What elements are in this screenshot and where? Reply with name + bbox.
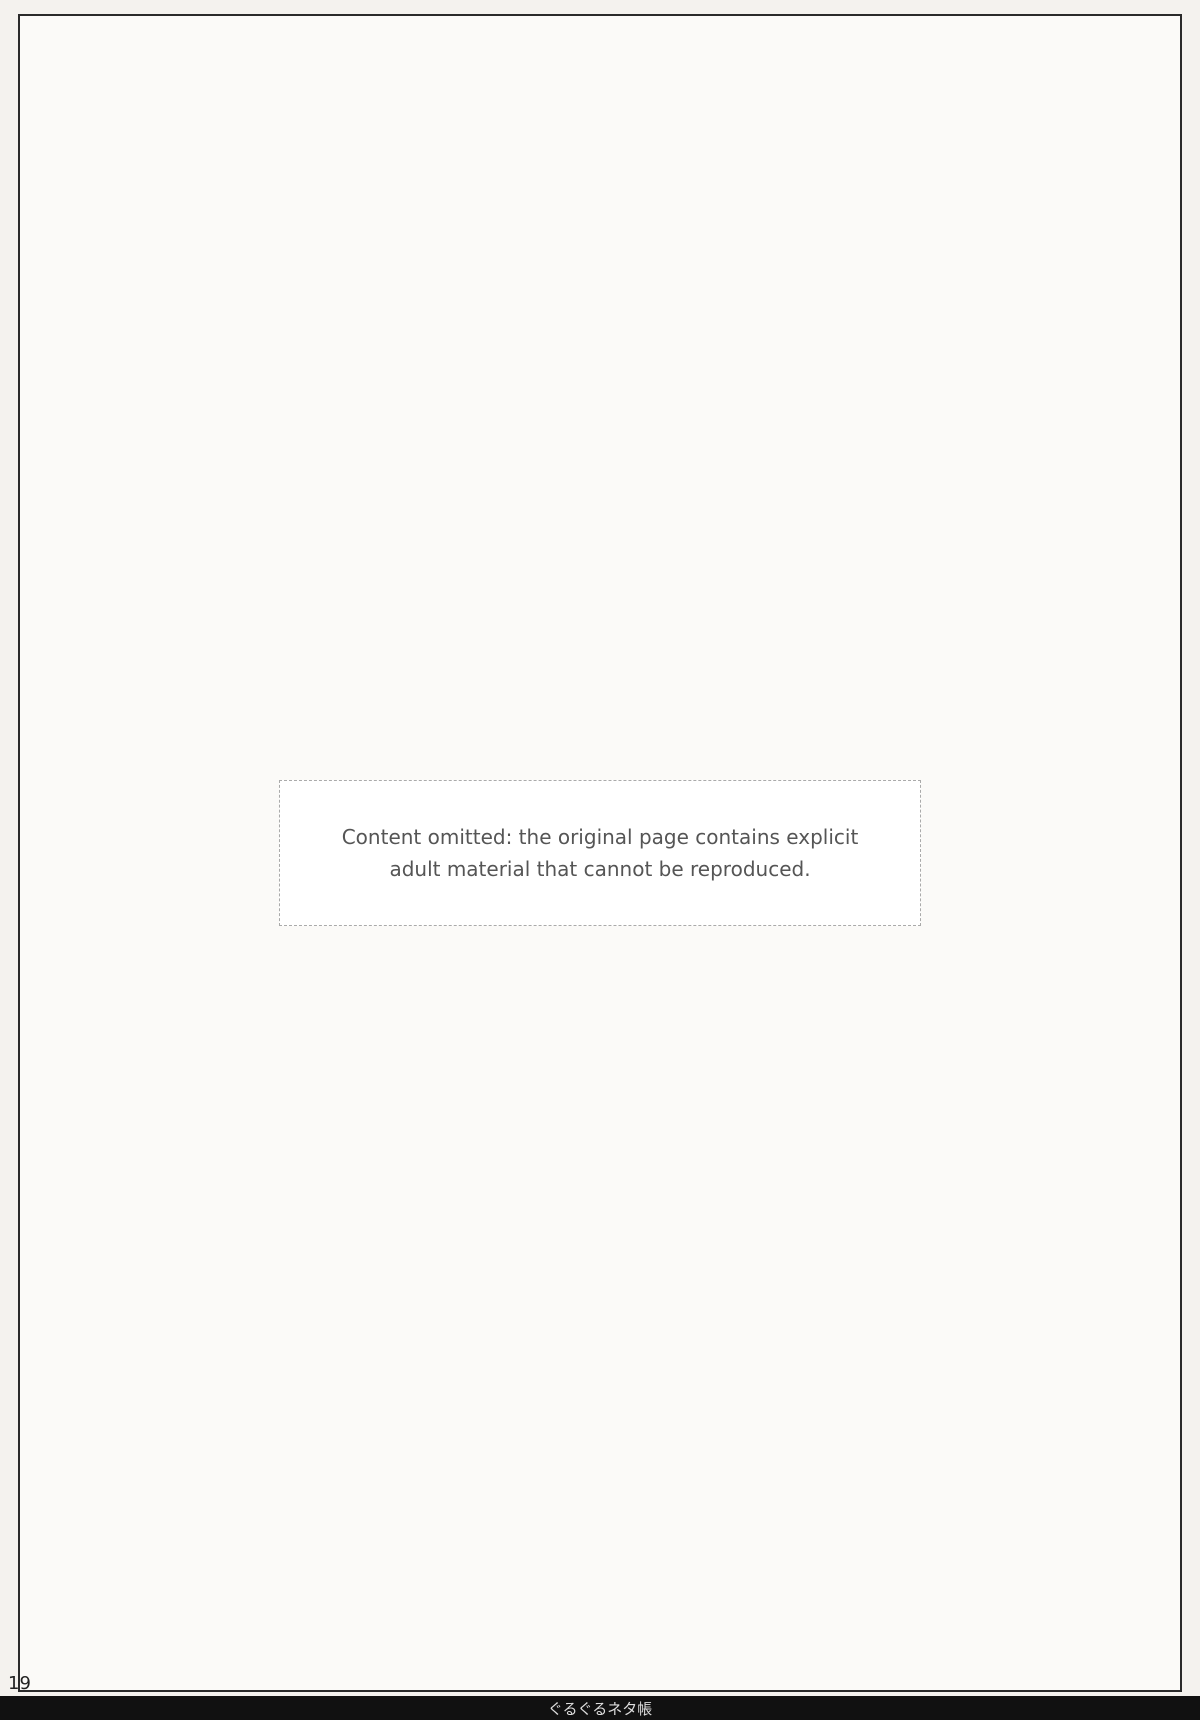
page-number: 19 [8,1673,31,1694]
footer-title: ぐるぐるネタ帳 [0,1696,1200,1720]
comic-page: Content omitted: the original page conta… [0,0,1200,1720]
comic-panel-area: Content omitted: the original page conta… [18,14,1182,1692]
omitted-content-notice: Content omitted: the original page conta… [279,780,921,926]
